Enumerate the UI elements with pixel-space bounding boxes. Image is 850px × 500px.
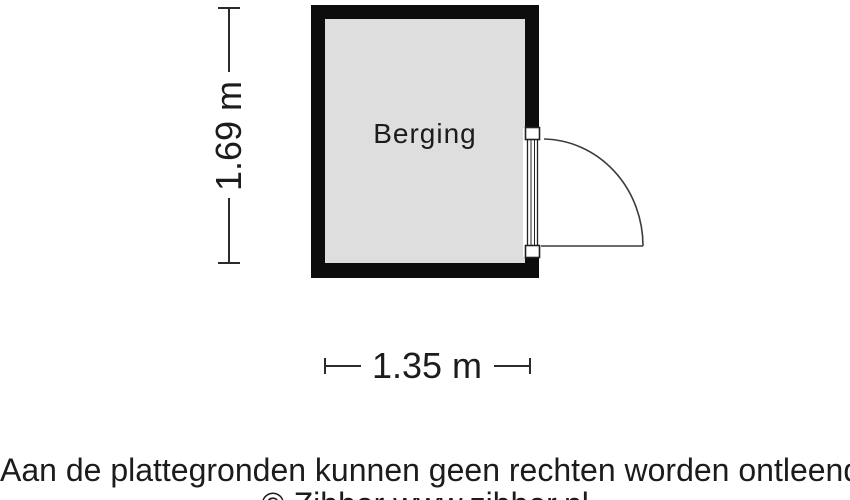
credit-text: © Zibber www.zibber.nl — [0, 486, 850, 500]
door-jamb-bottom — [526, 246, 540, 258]
floorplan-page: Berging 1.69 m 1.35 m Aan de plattegrond… — [0, 0, 850, 500]
floorplan-drawing — [0, 0, 850, 500]
disclaimer-text: Aan de plattegronden kunnen geen rechten… — [0, 452, 850, 488]
room-name-label: Berging — [325, 116, 525, 152]
width-dimension-label: 1.35 m — [357, 347, 497, 385]
door-jamb-top — [526, 128, 540, 140]
door-swing-arc-icon — [544, 139, 643, 246]
door-frame-panel — [528, 139, 538, 246]
height-dimension-label: 1.69 m — [210, 71, 248, 201]
door — [523, 128, 643, 258]
